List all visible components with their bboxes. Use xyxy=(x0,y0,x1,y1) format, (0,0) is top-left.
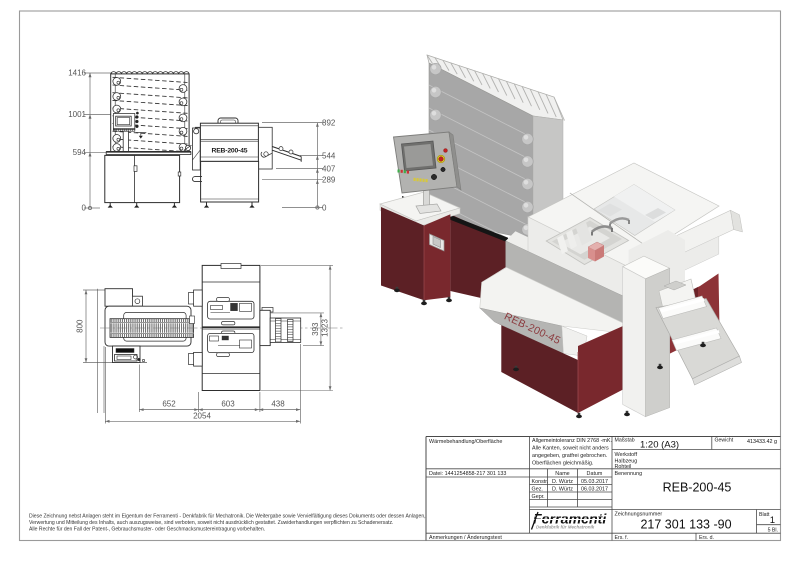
svg-text:D. Würtz: D. Würtz xyxy=(552,486,573,492)
svg-text:0: 0 xyxy=(82,204,87,213)
svg-text:angegeben, gratfrei gebrochen.: angegeben, gratfrei gebrochen. xyxy=(532,453,607,459)
svg-text:1001: 1001 xyxy=(68,110,86,119)
svg-text:1:20 (A3): 1:20 (A3) xyxy=(640,439,679,450)
svg-text:Oberflächen gleichmäßig.: Oberflächen gleichmäßig. xyxy=(532,461,593,467)
svg-text:892: 892 xyxy=(322,118,336,127)
svg-text:2054: 2054 xyxy=(193,411,211,420)
svg-text:Ers. d.: Ers. d. xyxy=(699,535,714,541)
svg-text:06.03.2017: 06.03.2017 xyxy=(581,486,608,492)
svg-text:Verwertung und Mitteilung des: Verwertung und Mitteilung des Inhalts, a… xyxy=(29,520,393,526)
svg-text:438: 438 xyxy=(271,400,285,409)
svg-text:Gewicht: Gewicht xyxy=(715,438,734,444)
svg-text:289: 289 xyxy=(322,176,336,185)
svg-text:Denkfabrik für Mechatronik: Denkfabrik für Mechatronik xyxy=(536,525,595,530)
svg-text:1: 1 xyxy=(770,515,775,526)
svg-text:Diese Zeichnung nebst Anlagen: Diese Zeichnung nebst Anlagen steht im E… xyxy=(29,514,426,520)
svg-text:1416: 1416 xyxy=(68,69,86,78)
svg-text:652: 652 xyxy=(162,400,176,409)
svg-text:Datum: Datum xyxy=(587,471,603,477)
svg-text:Rohteil: Rohteil xyxy=(615,464,632,470)
svg-text:05.03.2017: 05.03.2017 xyxy=(581,479,608,485)
svg-text:Wärmebehandlung/Oberfläche: Wärmebehandlung/Oberfläche xyxy=(429,439,502,445)
svg-text:Konstr.: Konstr. xyxy=(532,479,549,485)
svg-text:1323: 1323 xyxy=(320,319,329,337)
svg-text:Alle Rechte für den Fall der P: Alle Rechte für den Fall der Patent-, Ge… xyxy=(29,527,265,533)
svg-text:800: 800 xyxy=(76,319,85,333)
svg-text:217 301 133 -90: 217 301 133 -90 xyxy=(640,518,731,532)
svg-text:Name: Name xyxy=(555,471,569,477)
svg-text:Blatt: Blatt xyxy=(759,512,770,518)
svg-text:5 Bl.: 5 Bl. xyxy=(768,528,778,534)
svg-text:D. Würtz: D. Würtz xyxy=(552,479,573,485)
svg-text:Gez.: Gez. xyxy=(532,486,543,492)
svg-text:407: 407 xyxy=(322,164,336,173)
svg-text:Gepr.: Gepr. xyxy=(532,494,545,500)
svg-text:Datei: 1441254858-217 301 133: Datei: 1441254858-217 301 133 xyxy=(429,471,506,477)
svg-text:Alle Kanten, soweit nicht ande: Alle Kanten, soweit nicht anders xyxy=(532,446,609,452)
svg-text:Ers. f.: Ers. f. xyxy=(615,535,629,541)
svg-text:594: 594 xyxy=(73,148,87,157)
svg-text:Anmerkungen / Änderungstext: Anmerkungen / Änderungstext xyxy=(429,534,502,541)
svg-text:Benennung: Benennung xyxy=(615,471,643,477)
svg-text:603: 603 xyxy=(221,400,235,409)
svg-text:Allgemeintoleranz DIN 2768 -mK: Allgemeintoleranz DIN 2768 -mK. xyxy=(532,438,612,444)
svg-text:REB-200-45: REB-200-45 xyxy=(663,481,732,495)
svg-text:544: 544 xyxy=(322,151,336,160)
svg-text:393: 393 xyxy=(311,322,320,336)
svg-text:Maßstab: Maßstab xyxy=(615,438,635,444)
svg-text:413433.42 g: 413433.42 g xyxy=(747,439,777,445)
svg-text:Werkstoff: Werkstoff xyxy=(615,452,638,458)
svg-text:REB-200-45: REB-200-45 xyxy=(212,147,248,154)
svg-text:0: 0 xyxy=(322,203,327,212)
